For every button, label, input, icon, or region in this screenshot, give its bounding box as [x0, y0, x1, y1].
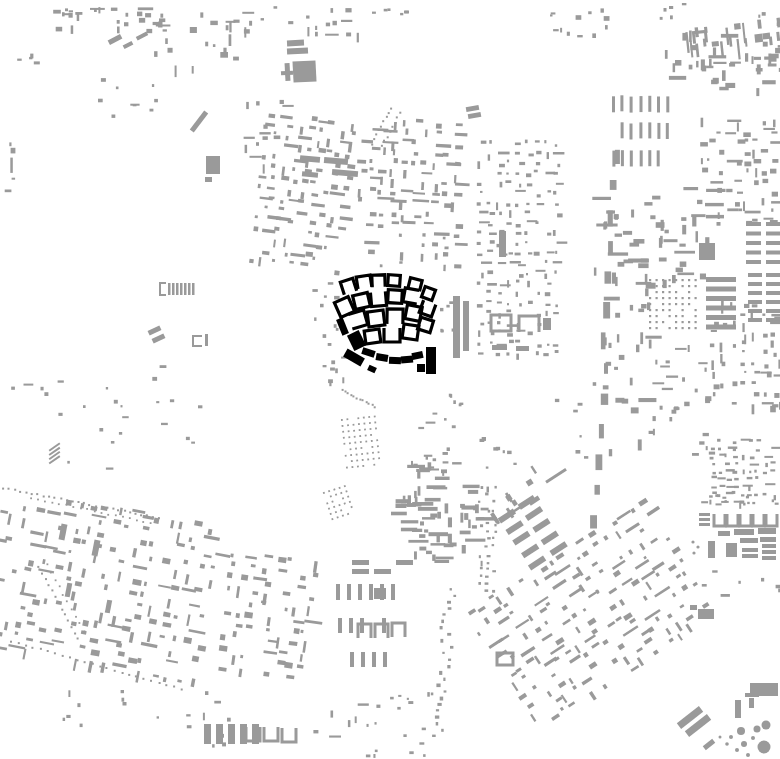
- context-dot: [342, 389, 344, 391]
- context-building: [409, 751, 413, 754]
- context-building: [486, 290, 491, 293]
- context-building: [742, 340, 746, 344]
- context-building: [630, 305, 633, 311]
- context-building: [452, 425, 456, 428]
- context-dot: [150, 522, 152, 524]
- context-building: [740, 313, 745, 316]
- context-building: [771, 447, 780, 449]
- context-building: [763, 472, 767, 474]
- context-building: [392, 212, 397, 217]
- context-building: [516, 224, 521, 228]
- context-building: [732, 491, 736, 494]
- context-dot: [64, 613, 66, 615]
- context-building: [764, 218, 774, 220]
- context-dot: [150, 680, 152, 682]
- context-building: [623, 231, 632, 235]
- context-building: [702, 168, 708, 173]
- context-building: [709, 59, 712, 67]
- context-building: [316, 245, 323, 250]
- context-building: [647, 302, 650, 310]
- context-building: [677, 273, 694, 276]
- context-building: [557, 242, 568, 244]
- context-building: [631, 210, 634, 218]
- context-building: [396, 499, 410, 503]
- context-building: [664, 8, 667, 12]
- context-building: [576, 450, 581, 454]
- context-building: [672, 410, 677, 414]
- context-dot: [372, 452, 374, 454]
- context-building: [400, 13, 403, 15]
- context-building: [342, 377, 344, 383]
- context-dot: [371, 440, 373, 442]
- context-building: [557, 164, 560, 167]
- context-dot: [649, 321, 651, 323]
- context-building: [433, 458, 437, 461]
- context-building: [398, 695, 401, 697]
- context-building: [734, 486, 739, 488]
- context-building: [615, 150, 620, 164]
- context-building: [271, 163, 276, 168]
- context-building: [638, 309, 644, 313]
- context-building: [274, 131, 277, 134]
- context-dot: [682, 279, 684, 281]
- context-building: [766, 251, 780, 255]
- storage-tank: [725, 742, 729, 746]
- context-building: [465, 539, 485, 542]
- context-building: [28, 560, 34, 567]
- context-building: [604, 363, 608, 374]
- landmark-building: [690, 605, 697, 610]
- context-building: [739, 503, 741, 509]
- context-building: [761, 578, 764, 582]
- context-building: [746, 241, 761, 245]
- context-building: [536, 351, 539, 355]
- context-building: [443, 237, 446, 240]
- context-building: [507, 333, 513, 337]
- context-building: [593, 382, 597, 386]
- context-building: [752, 56, 754, 64]
- context-dot: [649, 285, 651, 287]
- context-building: [749, 471, 751, 474]
- context-building: [432, 193, 440, 196]
- context-building: [106, 387, 108, 390]
- context-building: [652, 382, 664, 384]
- context-dot: [101, 506, 103, 508]
- landmark-building: [735, 700, 741, 718]
- context-building: [418, 507, 438, 511]
- context-dot: [59, 585, 61, 587]
- context-dot: [695, 315, 697, 317]
- context-building: [486, 467, 489, 469]
- context-building: [766, 273, 780, 277]
- context-building: [754, 371, 760, 374]
- context-dot: [688, 321, 690, 323]
- context-building: [507, 451, 512, 454]
- context-building: [707, 158, 709, 161]
- context-building: [117, 20, 120, 24]
- context-building: [764, 350, 768, 354]
- context-building: [666, 360, 670, 363]
- context-building: [720, 343, 723, 353]
- context-dot: [682, 327, 684, 329]
- context-building: [612, 273, 616, 284]
- context-dot: [675, 303, 677, 305]
- context-building: [487, 562, 490, 564]
- context-building: [146, 29, 152, 33]
- context-dot: [353, 424, 355, 426]
- context-building: [497, 302, 502, 304]
- context-building: [358, 197, 362, 202]
- context-building: [485, 576, 489, 578]
- context-building: [554, 172, 558, 175]
- context-building: [743, 201, 745, 211]
- context-building: [722, 497, 726, 499]
- context-building: [324, 246, 327, 250]
- context-building: [481, 561, 483, 567]
- context-building: [605, 271, 612, 283]
- context-building: [492, 590, 495, 593]
- context-building: [274, 227, 280, 231]
- context-building: [384, 9, 388, 12]
- context-building: [535, 140, 540, 142]
- landmark-building: [172, 283, 175, 295]
- context-building: [450, 202, 454, 212]
- context-dot: [31, 647, 33, 649]
- context-building: [190, 27, 197, 33]
- context-dot: [114, 670, 116, 672]
- context-dot: [2, 488, 4, 490]
- context-building: [771, 131, 777, 133]
- context-building: [229, 22, 231, 32]
- landmark-building: [184, 283, 187, 295]
- context-building: [352, 569, 369, 574]
- context-building: [754, 159, 762, 163]
- context-building: [547, 251, 555, 253]
- context-dot: [682, 303, 684, 305]
- context-dot: [50, 572, 52, 574]
- context-dot: [117, 509, 119, 511]
- context-building: [293, 628, 299, 634]
- context-building: [498, 262, 506, 264]
- context-building: [743, 132, 751, 137]
- context-building: [688, 345, 690, 352]
- context-building: [263, 671, 269, 676]
- context-building: [727, 479, 732, 481]
- context-building: [418, 427, 424, 429]
- context-dot: [18, 642, 20, 644]
- context-building: [713, 62, 726, 64]
- context-building: [545, 260, 547, 263]
- context-building: [282, 105, 293, 107]
- context-building: [604, 16, 610, 21]
- context-building: [430, 514, 437, 518]
- context-building: [336, 584, 340, 600]
- context-building: [442, 473, 444, 476]
- context-building: [732, 471, 737, 474]
- context-building: [58, 413, 62, 416]
- context-building: [675, 60, 681, 66]
- context-building: [515, 253, 521, 256]
- context-building: [721, 501, 729, 503]
- context-dot: [675, 315, 677, 317]
- context-building: [312, 289, 317, 292]
- context-building: [358, 703, 369, 705]
- context-building: [596, 454, 603, 470]
- context-building: [751, 311, 753, 318]
- context-dot: [662, 309, 664, 311]
- context-building: [742, 350, 745, 352]
- context-building: [312, 256, 315, 259]
- context-building: [439, 671, 442, 675]
- context-dot: [37, 566, 39, 568]
- context-building: [640, 96, 643, 112]
- context-dot: [669, 327, 671, 329]
- context-dot: [390, 108, 392, 110]
- context-building: [214, 701, 221, 704]
- context-building: [250, 156, 262, 158]
- context-building: [375, 750, 378, 753]
- context-building: [426, 212, 429, 217]
- context-building: [712, 463, 715, 465]
- landmark-building: [192, 283, 195, 295]
- context-dot: [662, 291, 664, 293]
- context-building: [766, 291, 780, 295]
- context-building: [487, 250, 493, 252]
- context-dot: [669, 285, 671, 287]
- landmark-building: [698, 609, 714, 619]
- context-building: [488, 224, 493, 226]
- context-building: [770, 58, 777, 62]
- context-building: [334, 270, 340, 275]
- context-building: [455, 243, 468, 246]
- context-building: [776, 585, 780, 589]
- context-building: [426, 551, 432, 554]
- context-building: [738, 581, 740, 584]
- storage-tank: [754, 726, 761, 733]
- context-building: [10, 158, 13, 173]
- context-dot: [375, 133, 377, 135]
- context-building: [228, 724, 235, 744]
- context-building: [53, 10, 61, 14]
- context-building: [440, 329, 442, 333]
- context-dot: [62, 655, 64, 657]
- context-building: [553, 344, 559, 346]
- context-building: [610, 180, 617, 190]
- context-building: [436, 709, 439, 711]
- context-building: [720, 384, 723, 389]
- context-building: [383, 147, 386, 155]
- context-building: [713, 48, 716, 56]
- context-dot: [66, 499, 68, 501]
- context-building: [592, 197, 611, 200]
- context-building: [69, 13, 73, 18]
- context-building: [325, 34, 339, 36]
- context-building: [441, 620, 444, 624]
- context-building: [698, 362, 707, 364]
- context-building: [543, 353, 548, 356]
- context-dot: [373, 458, 375, 460]
- context-building: [315, 32, 318, 37]
- context-building: [773, 120, 776, 128]
- context-building: [159, 18, 165, 22]
- context-building: [590, 515, 597, 528]
- context-building: [481, 508, 489, 511]
- context-building: [636, 345, 639, 353]
- landmark-building: [699, 518, 710, 521]
- context-building: [683, 187, 698, 190]
- context-building: [535, 221, 538, 224]
- context-dot: [152, 516, 154, 518]
- context-building: [106, 468, 114, 470]
- context-dot: [368, 403, 370, 405]
- context-building: [615, 234, 622, 237]
- context-building: [555, 305, 558, 308]
- context-building: [498, 152, 510, 155]
- context-building: [709, 495, 713, 497]
- context-dot: [341, 419, 343, 421]
- context-building: [249, 259, 254, 264]
- context-building: [609, 343, 612, 348]
- context-building: [486, 310, 491, 313]
- context-building: [754, 494, 758, 497]
- context-building: [348, 720, 351, 727]
- context-building: [755, 476, 758, 479]
- context-building: [716, 132, 720, 134]
- context-building: [734, 180, 742, 182]
- context-building: [755, 168, 757, 177]
- context-building: [725, 454, 727, 458]
- context-building: [665, 230, 669, 234]
- context-building: [738, 209, 742, 212]
- context-building: [551, 12, 556, 14]
- context-building: [526, 173, 531, 177]
- context-building: [156, 401, 159, 403]
- context-building: [772, 192, 778, 197]
- context-building: [249, 21, 252, 26]
- context-building: [480, 567, 483, 569]
- context-dot: [48, 496, 50, 498]
- context-building: [331, 360, 335, 364]
- landmark-building: [453, 296, 460, 358]
- context-dot: [688, 303, 690, 305]
- context-building: [213, 44, 216, 47]
- context-dot: [356, 398, 358, 400]
- context-building: [756, 88, 759, 96]
- context-building: [771, 461, 776, 463]
- context-building: [478, 582, 481, 585]
- context-building: [114, 400, 118, 404]
- context-building: [735, 202, 740, 207]
- context-building: [41, 387, 44, 391]
- context-building: [546, 304, 551, 306]
- context-building: [448, 534, 452, 543]
- storage-tank: [751, 736, 755, 740]
- context-building: [152, 84, 154, 87]
- context-building: [743, 470, 745, 475]
- context-building: [139, 18, 145, 23]
- context-building: [345, 154, 350, 159]
- context-building: [15, 621, 22, 628]
- context-building: [770, 469, 775, 471]
- context-building: [682, 3, 687, 5]
- context-building: [437, 512, 441, 519]
- landmark-building: [206, 156, 220, 174]
- context-building: [329, 736, 341, 738]
- context-building: [435, 716, 439, 719]
- landmark-building: [749, 698, 754, 708]
- context-dot: [135, 675, 137, 677]
- context-building: [766, 222, 780, 226]
- context-building: [516, 292, 518, 297]
- context-building: [383, 652, 387, 667]
- context-building: [567, 32, 570, 36]
- context-building: [437, 131, 442, 134]
- context-dot: [383, 140, 385, 142]
- context-building: [742, 323, 744, 332]
- landmark-building: [742, 554, 758, 558]
- context-building: [431, 200, 439, 203]
- context-building: [444, 246, 448, 249]
- landmark-building: [726, 543, 737, 557]
- context-dot: [362, 459, 364, 461]
- context-building: [328, 120, 335, 125]
- context-building: [430, 469, 439, 471]
- context-dot: [10, 641, 12, 643]
- context-building: [745, 139, 749, 142]
- context-building: [515, 143, 521, 146]
- context-building: [706, 287, 736, 292]
- context-building: [130, 104, 139, 106]
- context-dot: [31, 493, 33, 495]
- context-building: [460, 531, 471, 535]
- context-building: [378, 224, 384, 228]
- context-building: [509, 252, 513, 254]
- context-building: [444, 418, 447, 421]
- context-building: [721, 310, 723, 314]
- context-dot: [374, 416, 376, 418]
- context-dot: [386, 116, 388, 118]
- context-dot: [378, 129, 380, 131]
- context-dot: [52, 502, 54, 504]
- context-building: [515, 204, 518, 207]
- context-building: [763, 42, 768, 47]
- context-building: [775, 48, 780, 53]
- context-building: [631, 407, 639, 413]
- storage-tank: [741, 741, 747, 747]
- context-building: [752, 333, 754, 342]
- context-dot: [53, 497, 55, 499]
- context-building: [766, 300, 780, 304]
- context-building: [555, 399, 559, 402]
- context-dot: [58, 602, 60, 604]
- context-building: [721, 34, 738, 38]
- context-dot: [343, 437, 345, 439]
- context-building: [548, 190, 552, 192]
- context-building: [256, 101, 260, 105]
- context-building: [480, 439, 485, 442]
- context-building: [190, 546, 195, 550]
- context-dot: [695, 309, 697, 311]
- context-dot: [92, 663, 94, 665]
- context-building: [555, 203, 559, 205]
- context-building: [717, 222, 721, 226]
- context-building: [121, 690, 124, 693]
- context-building: [705, 396, 711, 401]
- landmark-building: [699, 513, 710, 516]
- context-building: [553, 152, 565, 155]
- context-building: [477, 304, 483, 308]
- context-building: [645, 289, 648, 297]
